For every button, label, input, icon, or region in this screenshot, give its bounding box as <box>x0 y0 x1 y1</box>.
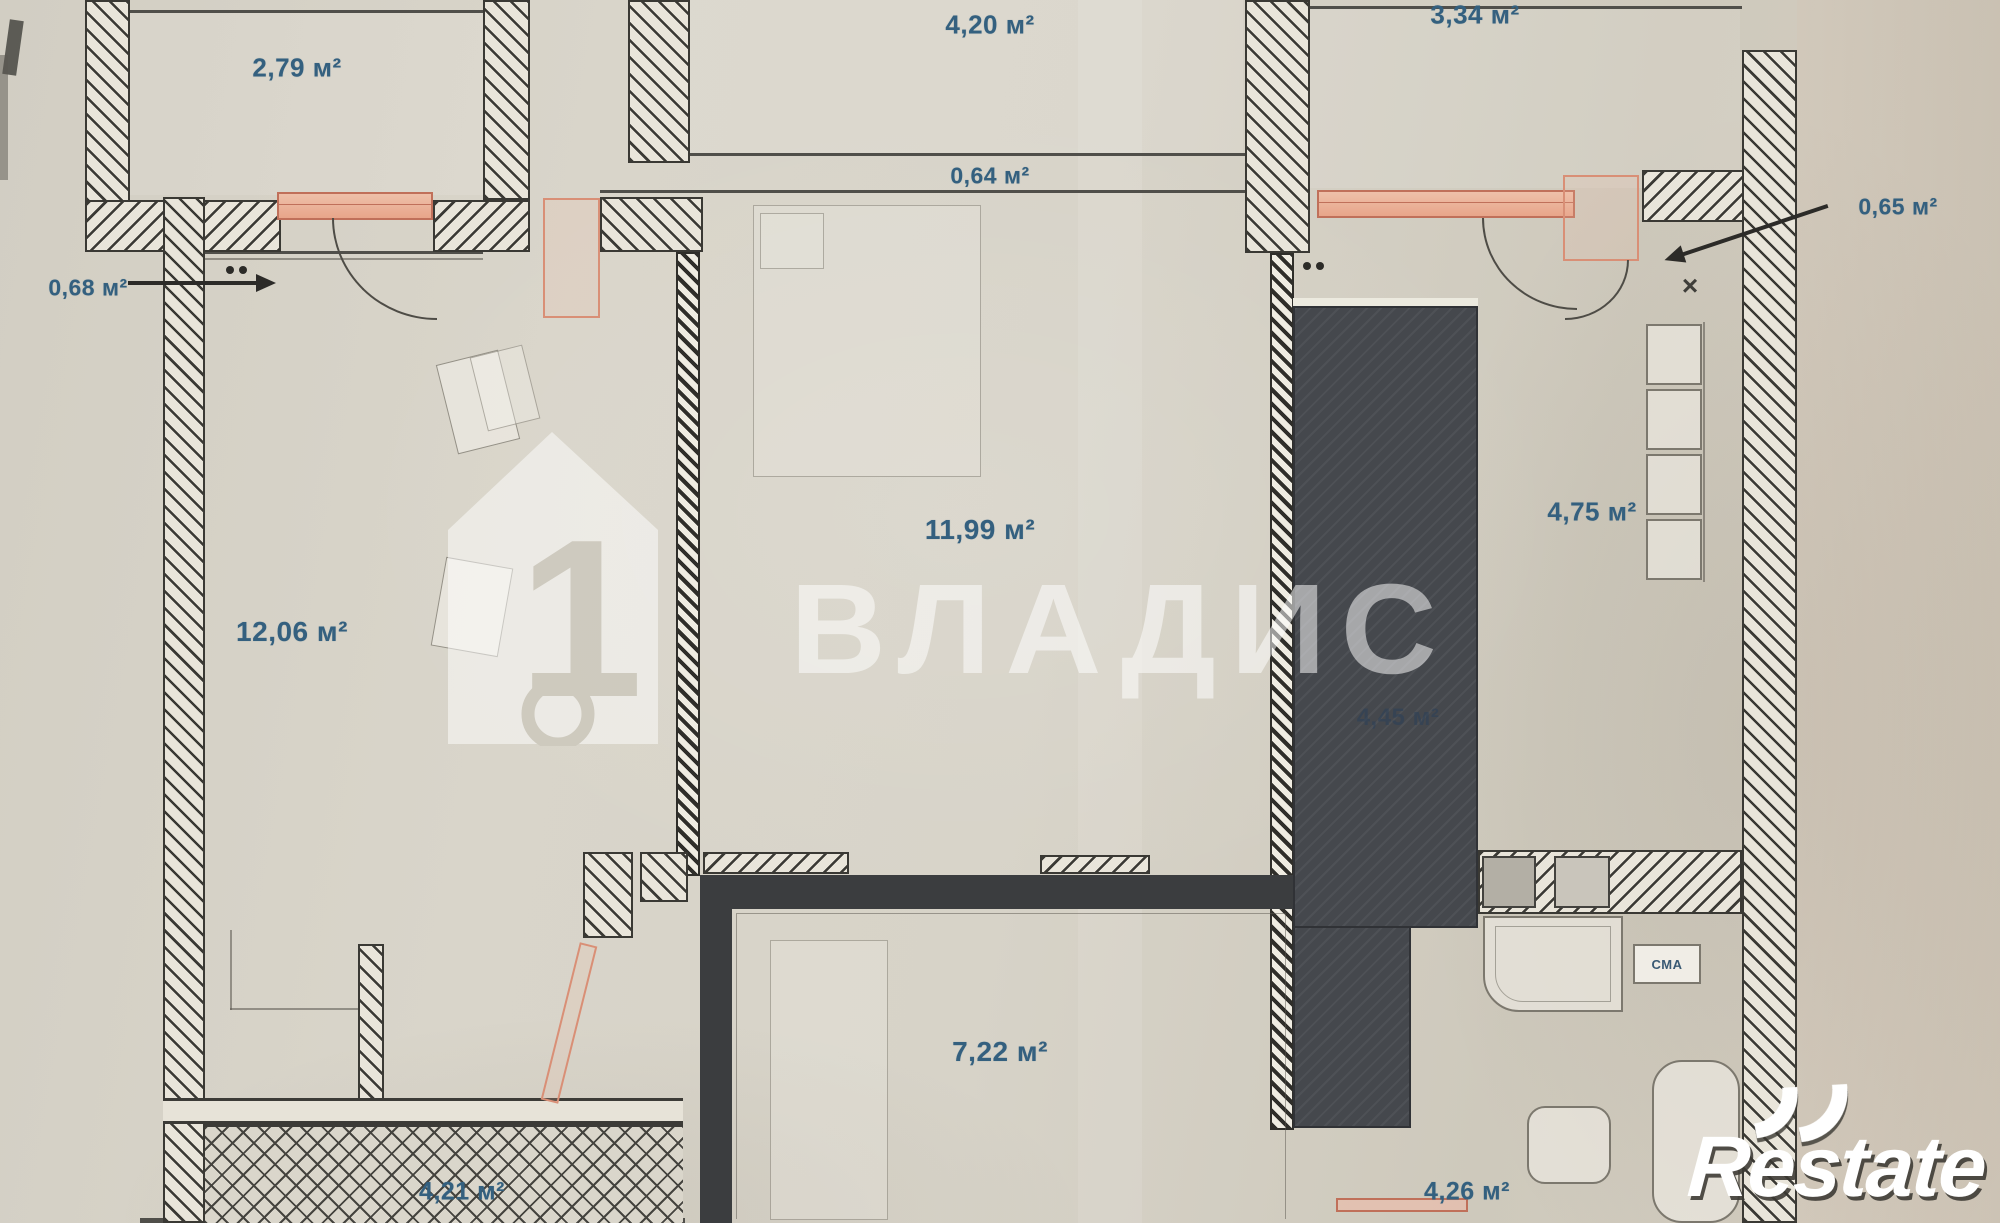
wall-strip-above-722-right <box>1040 855 1150 874</box>
wall-722-top-dark <box>700 875 1293 909</box>
room-area-label-kitchen-right: 4,75 м² <box>1547 497 1636 528</box>
window-radiator-left <box>277 192 433 220</box>
room-area-label-balcony-left: 0,68 м² <box>48 275 127 302</box>
wall-strip-above-722-left <box>703 852 849 874</box>
arrow-068-dot-2 <box>239 266 247 274</box>
door-bathroom <box>1336 1198 1468 1212</box>
wall-outer-left <box>163 197 205 1223</box>
wall-line-strip-top <box>690 153 1245 156</box>
wall-block-corridor-1 <box>583 852 633 938</box>
kitchen-unit-1 <box>1646 324 1702 385</box>
dark-shaft-lower <box>1293 926 1411 1128</box>
door-arc-balcony-left <box>332 218 437 320</box>
kitchen-unit-4 <box>1646 519 1702 580</box>
paper-highlight-balcony <box>130 12 483 195</box>
restate-logo: Restate <box>1685 1118 1989 1217</box>
wall-line-strip-bottom <box>600 190 1248 193</box>
room-area-label-strip-center: 0,64 м² <box>950 163 1029 190</box>
arrow-068-line <box>128 281 262 285</box>
toilet <box>1527 1106 1611 1184</box>
wall-722-left-dark <box>700 875 732 1223</box>
washing-machine-label: СМА <box>1652 957 1683 972</box>
washing-machine: СМА <box>1633 944 1701 984</box>
wall-hall-left <box>628 0 690 163</box>
paper-edge-right <box>1797 0 2000 1223</box>
paper-smudge-2 <box>0 55 8 180</box>
door-arc-niche <box>1565 260 1629 320</box>
wall-room1206-bottom <box>163 1098 683 1124</box>
wall-balcony-right <box>483 0 530 200</box>
paper-highlight-hall <box>690 0 1243 153</box>
arrow-068-dot-1 <box>226 266 234 274</box>
wall-top-left <box>85 0 130 203</box>
wall-room-divider-left <box>676 252 700 876</box>
arrow-068-head <box>256 274 276 292</box>
wall-block-corridor-2 <box>640 852 688 902</box>
vladis-house-key-icon: 1 <box>440 428 660 746</box>
shaft-top-gap <box>1293 298 1478 306</box>
arrow-065-head <box>1662 245 1687 268</box>
room-area-label-room-left: 12,06 м² <box>236 616 348 648</box>
wall-under-balcony-right <box>433 200 530 252</box>
balcony-crosshatch-bottom-left <box>205 1124 683 1223</box>
vent-shaft-1 <box>1482 856 1536 908</box>
furniture-room-722 <box>770 940 888 1220</box>
wall-partition-room1206 <box>358 944 384 1106</box>
pillow-room-center <box>760 213 824 269</box>
kitchen-counter-line <box>1703 322 1705 582</box>
paper-highlight-room334 <box>1310 8 1740 188</box>
x-mark: × <box>1682 270 1698 302</box>
kitchen-unit-3 <box>1646 454 1702 515</box>
kitchen-unit-2 <box>1646 389 1702 450</box>
shower-tray-inner <box>1495 926 1611 1002</box>
wall-hall-right <box>1245 0 1310 253</box>
wall-line-room334-top <box>1310 6 1742 9</box>
door-leaf-corridor <box>541 942 598 1104</box>
wall-block-center <box>600 197 703 252</box>
vladis-watermark-text: ВЛАДИС <box>790 556 1451 703</box>
vent-dots-1 <box>1303 262 1311 270</box>
closet-line-1 <box>230 930 232 1010</box>
vent-dots-2 <box>1316 262 1324 270</box>
window-radiator-right <box>1317 190 1575 218</box>
door-leaf-balcony <box>543 198 600 318</box>
wall-line-balcony-top <box>128 10 528 13</box>
room-area-label-room-center: 11,99 м² <box>925 514 1035 546</box>
floor-plan-photo: СМА × 1 ВЛАДИС 2,79 м²4,20 м²3,34 м²0,64… <box>0 0 2000 1223</box>
vent-shaft-2 <box>1554 856 1610 908</box>
door-arc-room-right <box>1482 218 1577 310</box>
